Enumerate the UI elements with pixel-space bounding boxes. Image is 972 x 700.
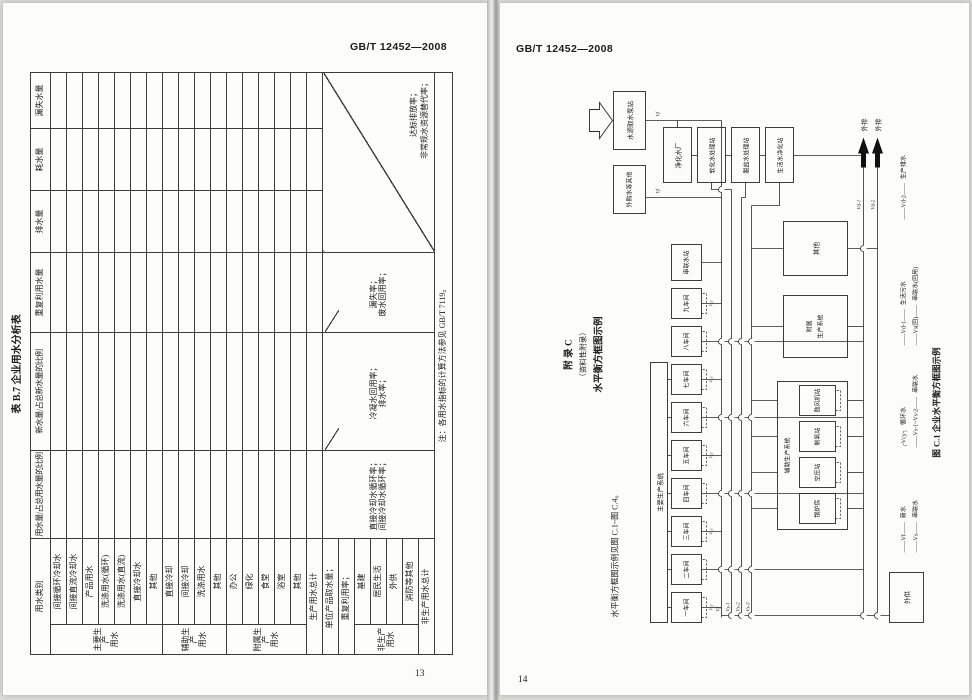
row-label: 直接冷却水 [131, 539, 147, 625]
empty-cell [83, 73, 99, 129]
empty-cell [227, 191, 243, 253]
svg-text:Vd-2: Vd-2 [872, 199, 877, 209]
table-row: 附属生产 用水 办公 [227, 73, 243, 655]
empty-cell [291, 73, 307, 129]
table-row: 其他 [211, 73, 227, 655]
col-header: 用水量/占总用水量的比例 [31, 451, 51, 539]
body-text: 水平衡方框图示例见图 C.1~图 C.4。 [610, 491, 620, 618]
legend-label: 串联水 [912, 500, 920, 518]
table-row: 主要生产 用水 间接循环冷却水 [51, 73, 67, 655]
figure-legend: ——Vf——新水 ┌Vcy┐循环水 ——Vd-1——生活污水 ——Vd-2——生… [900, 155, 920, 553]
table-title: 表 B.7 企业用水分析表 [8, 73, 30, 655]
group-label-line: 辅助生产 [182, 626, 199, 653]
table-note: 注：各用水指标的计算方法参见 GB/T 7119。 [435, 73, 453, 655]
empty-cell [115, 333, 131, 451]
empty-cell [227, 129, 243, 191]
svg-text:Vs-1: Vs-1 [727, 602, 732, 611]
empty-cell [275, 129, 291, 191]
box-label: 三车间 [683, 522, 691, 540]
group-label-line: 用水 [111, 626, 120, 653]
empty-cell [51, 333, 67, 451]
empty-cell [163, 333, 179, 451]
svg-text:——Vd-2——生产排水: ——Vd-2——生产排水 [900, 155, 908, 220]
svg-text:┌Vcy┐循环水: ┌Vcy┐循环水 [900, 407, 908, 448]
box-label: 鼓风机站 [814, 388, 822, 412]
table-row: 辅助生产 用水 直接冷却 [163, 73, 179, 655]
empty-cell [307, 451, 323, 539]
box-label: 净化水厂 [674, 142, 683, 169]
empty-cell [259, 451, 275, 539]
empty-cell [163, 253, 179, 333]
box-label: 二车间 [683, 560, 691, 578]
indicator-cell-discharge-diagonal: 达标排放率； 非常规水资源替代率； [323, 73, 435, 253]
empty-cell [195, 451, 211, 539]
rotated-diagram-container: 附 录 C （资料性附录） 水平衡方框图示例 水平衡方框图示例见图 C.1~图 … [556, 71, 948, 638]
empty-cell [243, 253, 259, 333]
group-label-main-production: 主要生产 用水 [51, 625, 163, 655]
empty-cell [83, 129, 99, 191]
empty-cell [195, 253, 211, 333]
page-13: GB/T 12452—2008 13 表 B.7 企业用水分析表 用水类别 用水… [2, 2, 488, 696]
empty-cell [179, 333, 195, 451]
group-label-line: 主要生产 [94, 626, 111, 653]
summary-row-label: 重复利用率； [339, 539, 355, 655]
empty-cell [51, 129, 67, 191]
empty-cell [179, 129, 195, 191]
row-label: 洗涤用水(循环) [99, 539, 115, 625]
group-label-auxiliary-production: 辅助生产 用水 [163, 625, 227, 655]
discharge-label: 外排 [874, 118, 883, 132]
empty-cell [115, 191, 131, 253]
empty-cell [131, 253, 147, 333]
empty-cell [275, 253, 291, 333]
legend-label: 串联水 [912, 375, 920, 393]
empty-cell [163, 191, 179, 253]
empty-cell [195, 73, 211, 129]
box-label: 六车间 [683, 408, 691, 426]
table-row: 其他 [147, 73, 163, 655]
empty-cell [115, 451, 131, 539]
row-label: 浴室 [275, 539, 291, 625]
legend-label: 生活污水 [900, 281, 908, 305]
svg-text:Vf: Vf [657, 111, 662, 116]
empty-cell [195, 129, 211, 191]
empty-cell [291, 191, 307, 253]
legend-label: 新水 [900, 506, 908, 518]
empty-cell [179, 191, 195, 253]
group-label-line: 用水 [271, 626, 280, 653]
table-row: 间接直流冷却水 [67, 73, 83, 655]
empty-cell [259, 333, 275, 451]
table-row: 直接冷却水 [131, 73, 147, 655]
row-label: 其他 [147, 539, 163, 625]
group-label-line: 用水 [199, 626, 208, 653]
empty-cell [115, 73, 131, 129]
doc-number: GB/T 12452—2008 [516, 43, 613, 55]
col-header: 新水量/占总新水量的比例 [31, 333, 51, 451]
box-label: 五车间 [683, 446, 691, 464]
empty-cell [243, 333, 259, 451]
box-label: 八车间 [683, 332, 691, 350]
col-header: 排水量 [31, 191, 51, 253]
empty-cell [99, 451, 115, 539]
box-label: 脱盐水处理站 [743, 137, 751, 173]
box-label: 软化水处理站 [709, 137, 717, 173]
legend-symbol: ——Vd-1—— [902, 308, 908, 346]
appendix-heading: 水平衡方框图示例 [593, 316, 605, 392]
row-label: 间接直流冷却水 [67, 539, 83, 625]
empty-cell [131, 73, 147, 129]
empty-cell [51, 253, 67, 333]
row-label: 间接循环冷却水 [51, 539, 67, 625]
empty-cell [195, 333, 211, 451]
header-row: 用水类别 用水量/占总用水量的比例 新水量/占总新水量的比例 重复利用水量 排水… [31, 73, 51, 655]
table-row: 其他 [291, 73, 307, 655]
box-label: 生活水净化站 [777, 137, 785, 173]
empty-cell [291, 129, 307, 191]
box-label: 水源取水泵站 [626, 101, 635, 141]
box-label: 生产系统 [817, 314, 825, 338]
box-label: 串联水站 [683, 250, 691, 274]
empty-cell [259, 73, 275, 129]
empty-cell [131, 451, 147, 539]
indicator-cell-usage: 直接冷却水循环率； 间接冷却水循环率； [323, 451, 435, 539]
rotated-table-container: 表 B.7 企业用水分析表 用水类别 用水量/占总用水量的比例 新水量/占总新水… [8, 73, 460, 655]
table-row: 单位产品取水量； 直接冷却水循环率； 间接冷却水循环率； 冷凝水回用率； 排水率… [323, 73, 339, 655]
box-label: 外购水等其他 [626, 171, 634, 207]
row-label: 办公 [227, 539, 243, 625]
box-label: 制氧站 [814, 427, 822, 445]
workshop-boxes: 一车间 二车间 三车间 四车间 五车间 六车间 七车间 八车间 九车间 串联水站 [672, 245, 702, 623]
empty-cell [163, 129, 179, 191]
indicator-text: 达标排放率； [410, 89, 419, 137]
empty-cell [67, 129, 83, 191]
note-row: 注：各用水指标的计算方法参见 GB/T 7119。 [435, 73, 453, 655]
empty-cell [307, 191, 323, 253]
empty-cell [291, 253, 307, 333]
row-label: 间接冷却 [179, 539, 195, 625]
page-gutter [487, 0, 499, 700]
box-label: 空压站 [814, 463, 822, 481]
group-label-line: 附属生产 [254, 626, 271, 653]
empty-cell [243, 191, 259, 253]
empty-cell [99, 333, 115, 451]
empty-cell [211, 73, 227, 129]
row-label: 其他 [291, 539, 307, 625]
legend-symbol: ——Vd-2—— [902, 182, 908, 220]
empty-cell [51, 191, 67, 253]
legend-label: 循环水 [900, 407, 908, 425]
empty-cell [307, 129, 323, 191]
table-row: 产品用水 [83, 73, 99, 655]
empty-cell [115, 129, 131, 191]
box-label: 主要生产系统 [656, 473, 665, 513]
table-row: 生产用水总计 [307, 73, 323, 655]
row-label: 其他 [211, 539, 227, 625]
indicator-text: 废水回用率； [379, 254, 388, 331]
svg-text:Vd-1: Vd-1 [858, 200, 863, 210]
col-header-category: 用水类别 [31, 539, 51, 655]
page-number: 13 [415, 669, 425, 679]
empty-cell [131, 333, 147, 451]
table-row: 洗涤用水(直流) [115, 73, 131, 655]
row-label: 居民生活 [371, 539, 387, 625]
empty-cell [227, 73, 243, 129]
nonproduction-total-label: 非生产用水总计 [419, 539, 435, 655]
table-row: 绿化 [243, 73, 259, 655]
col-header: 漏失水量 [31, 73, 51, 129]
empty-cell [179, 73, 195, 129]
empty-cell [291, 451, 307, 539]
empty-cell [147, 253, 163, 333]
empty-cell [179, 451, 195, 539]
box-attached-system [784, 296, 848, 358]
row-label: 洗涤用水 [195, 539, 211, 625]
empty-cell [67, 451, 83, 539]
empty-cell [163, 451, 179, 539]
empty-cell [307, 253, 323, 333]
box-label: 锅炉房 [814, 499, 822, 517]
water-source-arrow-icon [590, 103, 613, 139]
empty-cell [67, 73, 83, 129]
empty-cell [179, 253, 195, 333]
appendix-title: 附 录 C [563, 339, 575, 370]
empty-cell [307, 333, 323, 451]
col-header: 重复利用水量 [31, 253, 51, 333]
svg-text:Vf: Vf [717, 606, 722, 611]
box-label: 九车间 [683, 294, 691, 312]
row-label: 直接冷却 [163, 539, 179, 625]
empty-cell [227, 253, 243, 333]
empty-cell [99, 129, 115, 191]
legend-symbol: ——Vs(回)—— [913, 304, 920, 347]
box-label: 附属 [806, 320, 814, 332]
empty-cell [211, 191, 227, 253]
empty-cell [243, 73, 259, 129]
empty-cell [227, 451, 243, 539]
empty-cell [211, 333, 227, 451]
empty-cell [131, 129, 147, 191]
empty-cell [275, 333, 291, 451]
empty-cell [227, 333, 243, 451]
table-row: 浴室 [275, 73, 291, 655]
empty-cell [67, 191, 83, 253]
figure-caption: 图 C.1 企业水平衡方框图示例 [932, 347, 942, 458]
legend-label: 生产排水 [900, 155, 908, 179]
svg-text:——Vd-1——生活污水: ——Vd-1——生活污水 [900, 281, 908, 346]
svg-text:Vs-3: Vs-3 [747, 602, 752, 612]
legend-symbol: ——Vs—— [914, 521, 920, 554]
box-label: 外供 [903, 591, 912, 605]
empty-cell [83, 333, 99, 451]
box-label: 其他 [812, 242, 821, 256]
indicator-cell-reuse: 漏失率； 废水回用率； [323, 253, 435, 333]
empty-cell [99, 191, 115, 253]
empty-cell [243, 451, 259, 539]
box-label: 辅助生产系统 [784, 437, 792, 473]
box-label: 一车间 [683, 598, 691, 616]
table-row: 间接冷却 [179, 73, 195, 655]
table-row: 洗涤用水 [195, 73, 211, 655]
svg-text:——Vs-1~Vs-2——串联水: ——Vs-1~Vs-2——串联水 [912, 375, 920, 449]
row-label: 洗涤用水(直流) [115, 539, 131, 625]
indicator-text: 排水率； [379, 334, 388, 449]
empty-cell [67, 253, 83, 333]
water-analysis-table: 用水类别 用水量/占总用水量的比例 新水量/占总新水量的比例 重复利用水量 排水… [30, 72, 453, 655]
empty-cell [243, 129, 259, 191]
empty-cell [259, 253, 275, 333]
svg-text:——Vs(回)——串联水(回用): ——Vs(回)——串联水(回用) [912, 267, 920, 347]
svg-text:Vs-2: Vs-2 [737, 602, 742, 612]
group-label-attached-production: 附属生产 用水 [227, 625, 307, 655]
empty-cell [163, 73, 179, 129]
box-label: 七车间 [683, 370, 691, 388]
svg-text:——Vs——串联水: ——Vs——串联水 [912, 500, 920, 554]
empty-cell [275, 451, 291, 539]
empty-cell [99, 73, 115, 129]
empty-cell [147, 451, 163, 539]
auxiliary-station-boxes: 锅炉房 空压站 制氧站 鼓风机站 [800, 386, 841, 524]
empty-cell [259, 129, 275, 191]
row-label: 绿化 [243, 539, 259, 625]
svg-text:Vf: Vf [657, 188, 662, 193]
col-header: 耗水量 [31, 129, 51, 191]
empty-cell [83, 451, 99, 539]
empty-cell [307, 73, 323, 129]
row-label: 产品用水 [83, 539, 99, 625]
empty-cell [67, 333, 83, 451]
table-row: 洗涤用水(循环) [99, 73, 115, 655]
group-label-nonproduction: 非生产 用水 [355, 625, 419, 655]
empty-cell [275, 73, 291, 129]
empty-cell [147, 191, 163, 253]
empty-cell [115, 253, 131, 333]
empty-cell [131, 191, 147, 253]
empty-cell [51, 73, 67, 129]
row-label: 消防等其他 [403, 539, 419, 625]
discharge-arrow-icon [872, 138, 883, 168]
empty-cell [83, 253, 99, 333]
empty-cell [99, 253, 115, 333]
row-label: 外供 [387, 539, 403, 625]
empty-cell [291, 333, 307, 451]
empty-cell [259, 191, 275, 253]
empty-cell [147, 333, 163, 451]
svg-text:——Vf——新水: ——Vf——新水 [900, 506, 908, 553]
empty-cell [51, 451, 67, 539]
legend-symbol: ┌Vcy┐ [902, 429, 908, 448]
appendix-subtitle: （资料性附录） [578, 328, 588, 381]
table-row: 食堂 [259, 73, 275, 655]
summary-row-label: 单位产品取水量； [323, 539, 339, 655]
legend-symbol: ——Vf—— [901, 521, 908, 553]
doc-number: GB/T 12452—2008 [350, 41, 447, 53]
empty-cell [147, 73, 163, 129]
indicator-text: 间接冷却水循环率； [379, 452, 388, 537]
empty-cell [195, 191, 211, 253]
empty-cell [211, 129, 227, 191]
empty-cell [211, 253, 227, 333]
group-label-line: 用水 [387, 626, 396, 653]
legend-label: 串联水(回用) [912, 267, 920, 301]
production-total-label: 生产用水总计 [307, 539, 323, 655]
row-label: 基建 [355, 539, 371, 625]
indicator-text: 非常规水资源替代率； [421, 79, 430, 159]
discharge-arrow-icon [858, 138, 869, 168]
empty-cell [83, 191, 99, 253]
legend-symbol: ——Vs-1~Vs-2—— [914, 396, 920, 449]
water-balance-diagram: 附 录 C （资料性附录） 水平衡方框图示例 水平衡方框图示例见图 C.1~图 … [556, 71, 948, 638]
empty-cell [147, 129, 163, 191]
indicator-cell-freshwater: 冷凝水回用率； 排水率； [323, 333, 435, 451]
box-label: 四车间 [683, 484, 691, 502]
empty-cell [275, 191, 291, 253]
flow-lines [646, 121, 890, 620]
discharge-label: 外排 [860, 118, 869, 132]
row-label: 食堂 [259, 539, 275, 625]
empty-cell [211, 451, 227, 539]
page-number: 14 [518, 675, 528, 685]
